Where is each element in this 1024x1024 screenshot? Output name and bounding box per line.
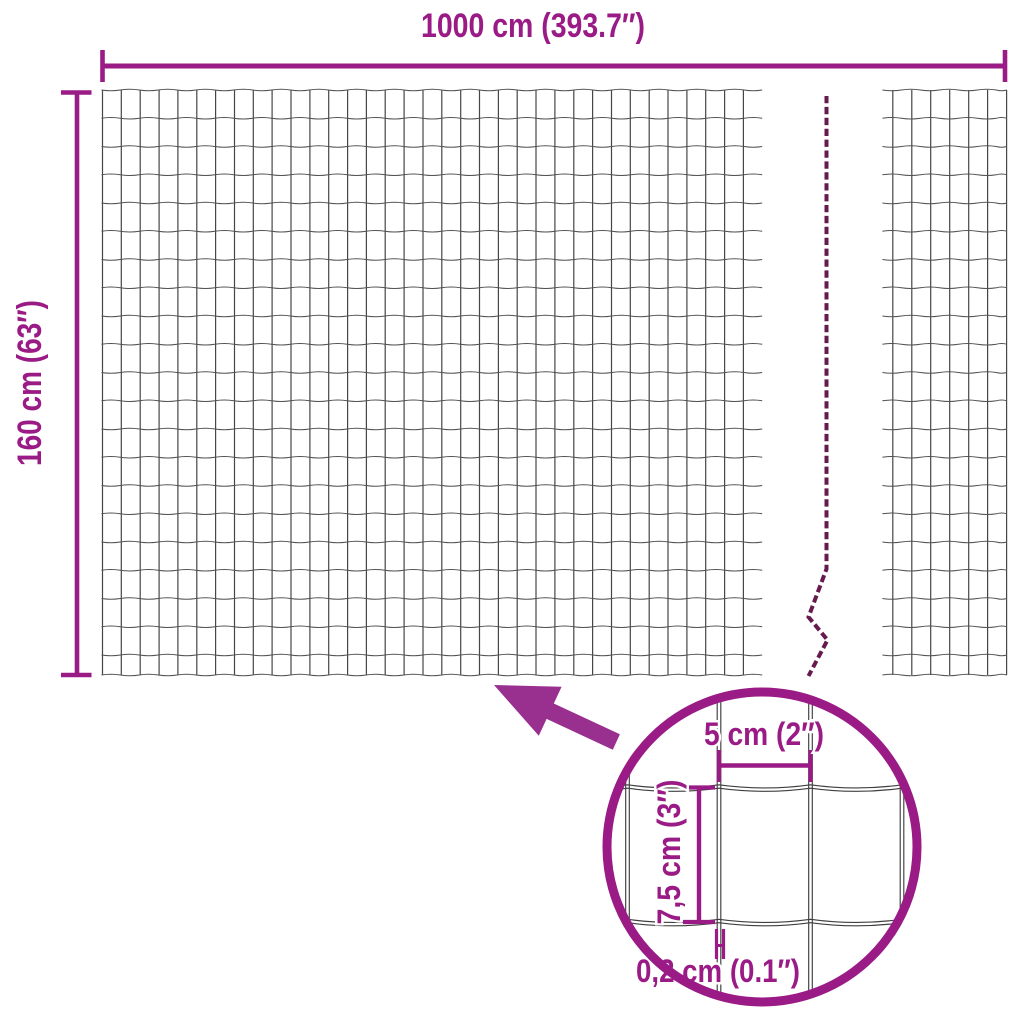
- svg-text:1000 cm (393.7″): 1000 cm (393.7″): [421, 7, 645, 45]
- svg-text:160 cm (63″): 160 cm (63″): [11, 300, 49, 466]
- svg-text:7,5 cm (3″): 7,5 cm (3″): [651, 780, 687, 925]
- svg-text:5 cm (2″): 5 cm (2″): [704, 716, 824, 752]
